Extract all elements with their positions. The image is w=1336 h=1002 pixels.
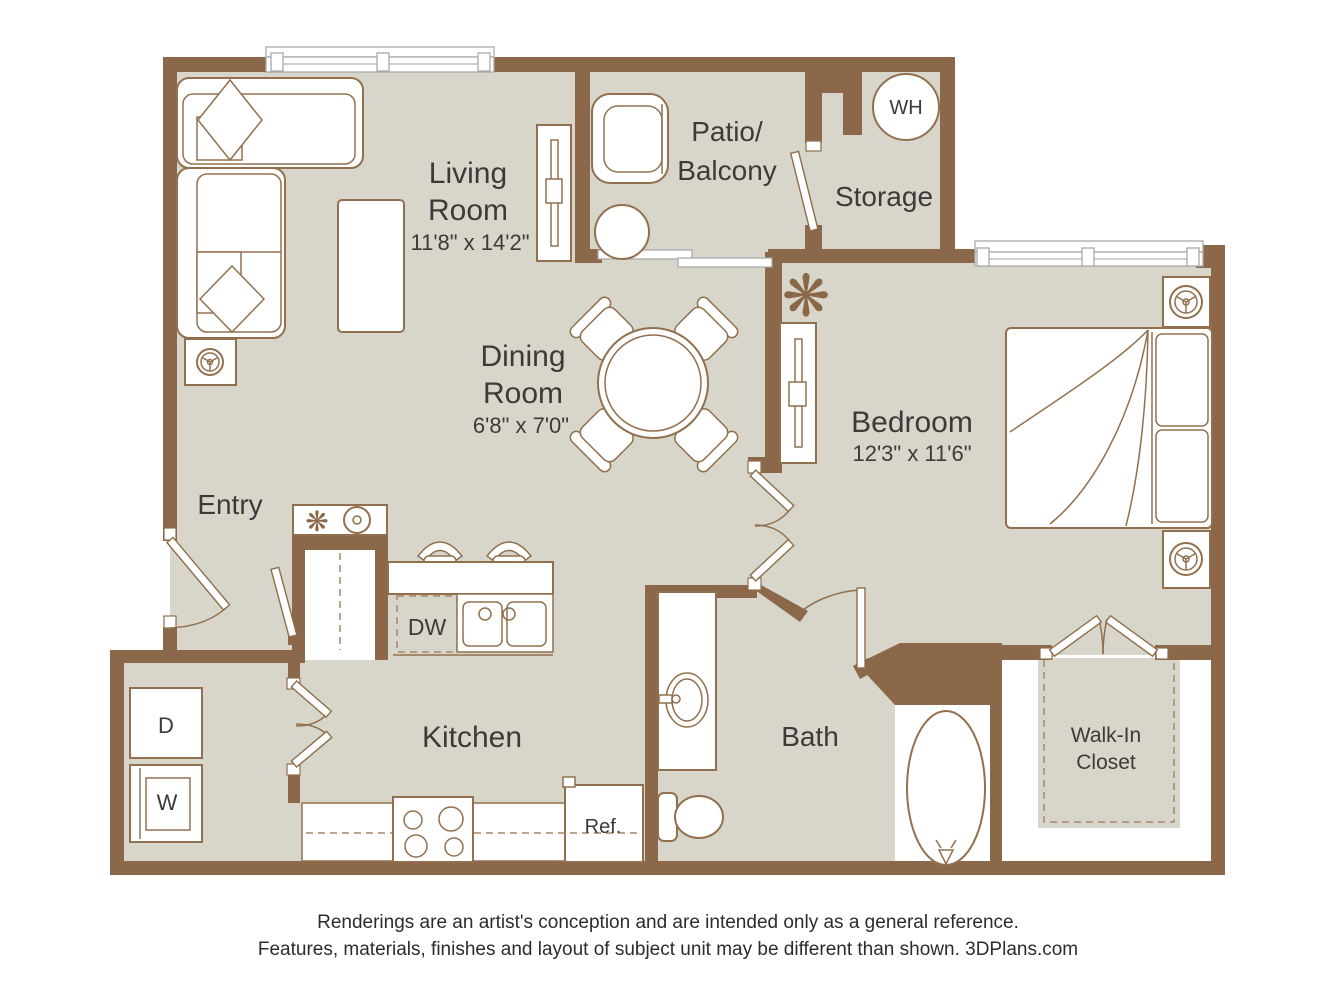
water-heater-label: WH <box>889 97 922 119</box>
fan-icon <box>197 349 223 375</box>
plant-icon: ❋ <box>305 506 328 537</box>
dryer-label: D <box>158 713 174 738</box>
living-room-label-1: Living <box>429 157 507 190</box>
entry-label: Entry <box>197 489 262 520</box>
bedroom-window <box>975 241 1203 266</box>
bed <box>1006 328 1212 528</box>
refrigerator-label: Ref. <box>585 816 622 838</box>
fan-icon <box>1170 543 1202 575</box>
disclaimer-line-1: Renderings are an artist's conception an… <box>317 912 1019 933</box>
bath-label: Bath <box>781 721 839 752</box>
coffee-table <box>338 200 404 332</box>
walk-in-closet-label-1: Walk-In <box>1071 724 1141 747</box>
bedroom-label: Bedroom <box>851 406 973 439</box>
entry-closet <box>305 550 375 660</box>
tv-console-living <box>537 125 571 261</box>
dining-room-label-1: Dining <box>480 340 565 373</box>
dishwasher-label: DW <box>408 614 447 640</box>
nightstand <box>1163 277 1210 327</box>
living-room-window <box>266 47 494 72</box>
living-fan-box <box>185 339 236 385</box>
disclaimer-line-2: Features, materials, finishes and layout… <box>258 939 1078 960</box>
nightstand <box>1163 531 1210 588</box>
patio-chair <box>592 94 668 183</box>
entry-console: ❋ <box>293 505 387 537</box>
patio-table <box>595 205 649 259</box>
dining-room-dims: 6'8" x 7'0" <box>473 413 569 438</box>
floor-plan: ❋ ❋ <box>0 0 1336 1002</box>
bathtub <box>907 711 985 865</box>
kitchen-sink <box>457 594 553 652</box>
patio-label-1: Patio/ <box>691 116 763 147</box>
walk-in-closet-label-2: Closet <box>1076 751 1136 774</box>
bath-vanity <box>658 592 716 770</box>
bedroom-dims: 12'3" x 11'6" <box>852 441 971 466</box>
washer-label: W <box>157 790 178 815</box>
tv-console-bedroom <box>780 323 816 463</box>
dining-table <box>598 328 708 438</box>
fan-icon <box>1170 286 1202 318</box>
plant-icon: ❋ <box>782 264 831 329</box>
stove <box>393 797 473 862</box>
living-room-dims: 11'8" x 14'2" <box>410 230 529 255</box>
kitchen-label: Kitchen <box>422 721 522 754</box>
toilet <box>658 793 723 841</box>
dining-room-label-2: Room <box>483 377 563 410</box>
storage-label: Storage <box>835 181 933 212</box>
living-room-label-2: Room <box>428 194 508 227</box>
patio-label-2: Balcony <box>677 155 777 186</box>
floor-plan-page: ❋ ❋ <box>0 0 1336 1002</box>
